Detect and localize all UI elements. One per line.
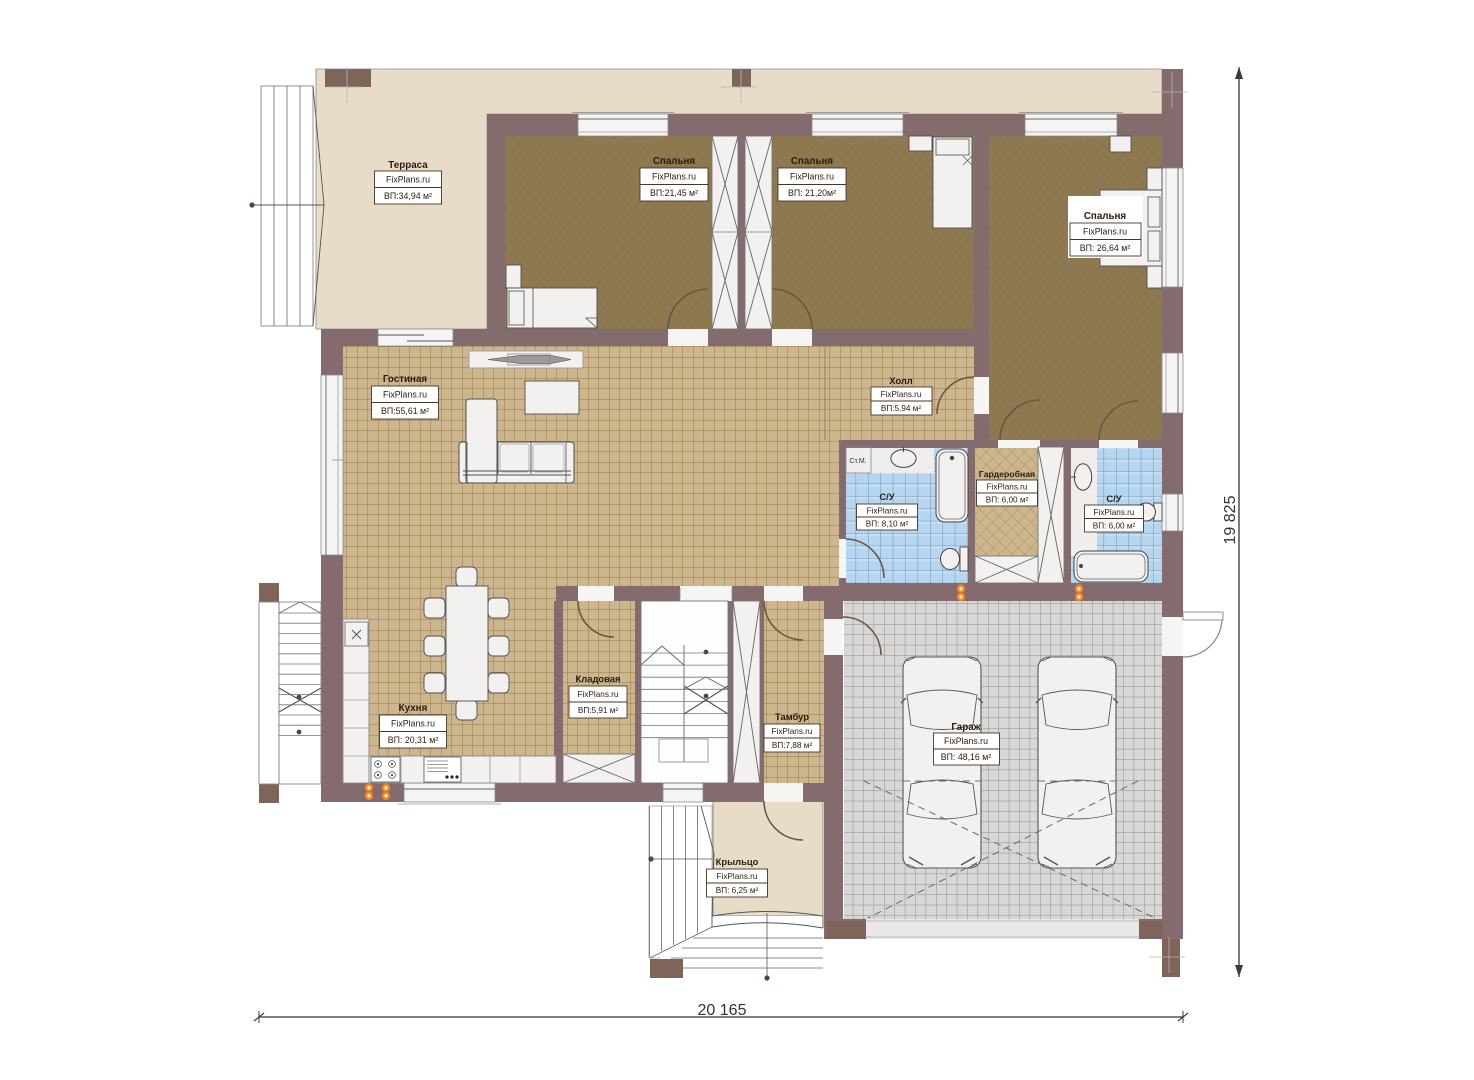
svg-text:FixPlans.ru: FixPlans.ru: [652, 171, 696, 181]
svg-text:ВП: 6,00 м²: ВП: 6,00 м²: [1093, 521, 1136, 530]
svg-text:ВП:5,94 м²: ВП:5,94 м²: [881, 404, 921, 413]
svg-text:FixPlans.ru: FixPlans.ru: [1094, 508, 1135, 517]
svg-text:ВП:7,88 м²: ВП:7,88 м²: [772, 741, 812, 750]
svg-text:Кухня: Кухня: [399, 703, 428, 714]
svg-text:FixPlans.ru: FixPlans.ru: [772, 727, 813, 736]
svg-text:ВП:34,94 м²: ВП:34,94 м²: [384, 191, 432, 201]
svg-text:С/У: С/У: [1106, 493, 1121, 504]
svg-text:Тамбур: Тамбур: [775, 711, 809, 722]
svg-text:FixPlans.ru: FixPlans.ru: [1083, 226, 1127, 236]
svg-text:Спальня: Спальня: [791, 156, 834, 167]
svg-text:ВП: 26,64 м²: ВП: 26,64 м²: [1080, 243, 1131, 253]
svg-text:ВП:5,91 м²: ВП:5,91 м²: [578, 706, 618, 715]
svg-text:FixPlans.ru: FixPlans.ru: [717, 872, 758, 881]
svg-text:Спальня: Спальня: [653, 156, 696, 167]
svg-text:ВП:55,61 м²: ВП:55,61 м²: [381, 406, 429, 416]
svg-text:Кладовая: Кладовая: [576, 673, 621, 684]
svg-text:Крыльцо: Крыльцо: [716, 856, 759, 867]
svg-text:ВП: 20,31 м²: ВП: 20,31 м²: [388, 735, 439, 745]
svg-text:FixPlans.ru: FixPlans.ru: [944, 736, 988, 746]
svg-text:FixPlans.ru: FixPlans.ru: [578, 690, 619, 699]
svg-text:ВП: 8,10 м²: ВП: 8,10 м²: [866, 520, 909, 529]
svg-text:FixPlans.ru: FixPlans.ru: [881, 390, 922, 399]
svg-text:FixPlans.ru: FixPlans.ru: [386, 174, 430, 184]
svg-text:Гардеробная: Гардеробная: [979, 469, 1035, 479]
svg-text:FixPlans.ru: FixPlans.ru: [790, 171, 834, 181]
svg-text:ВП: 21,20м²: ВП: 21,20м²: [788, 188, 836, 198]
svg-text:FixPlans.ru: FixPlans.ru: [383, 389, 427, 399]
svg-text:FixPlans.ru: FixPlans.ru: [987, 483, 1028, 492]
svg-text:FixPlans.ru: FixPlans.ru: [867, 507, 908, 516]
svg-text:ВП:21,45 м²: ВП:21,45 м²: [650, 188, 698, 198]
svg-text:Гостиная: Гостиная: [383, 374, 428, 385]
svg-text:Гараж: Гараж: [951, 722, 981, 733]
svg-text:FixPlans.ru: FixPlans.ru: [391, 718, 435, 728]
svg-text:ВП: 6,00 м²: ВП: 6,00 м²: [986, 496, 1029, 505]
svg-text:19 825: 19 825: [1222, 495, 1239, 544]
svg-text:Спальня: Спальня: [1084, 211, 1127, 222]
svg-text:ВП: 48,16 м²: ВП: 48,16 м²: [941, 752, 992, 762]
svg-text:ВП: 6,25 м²: ВП: 6,25 м²: [716, 886, 759, 895]
svg-text:Ст.М.: Ст.М.: [849, 458, 866, 465]
svg-text:Холл: Холл: [889, 375, 913, 386]
svg-text:20 165: 20 165: [698, 1002, 747, 1019]
svg-text:Терраса: Терраса: [388, 160, 428, 171]
svg-text:С/У: С/У: [879, 491, 894, 502]
